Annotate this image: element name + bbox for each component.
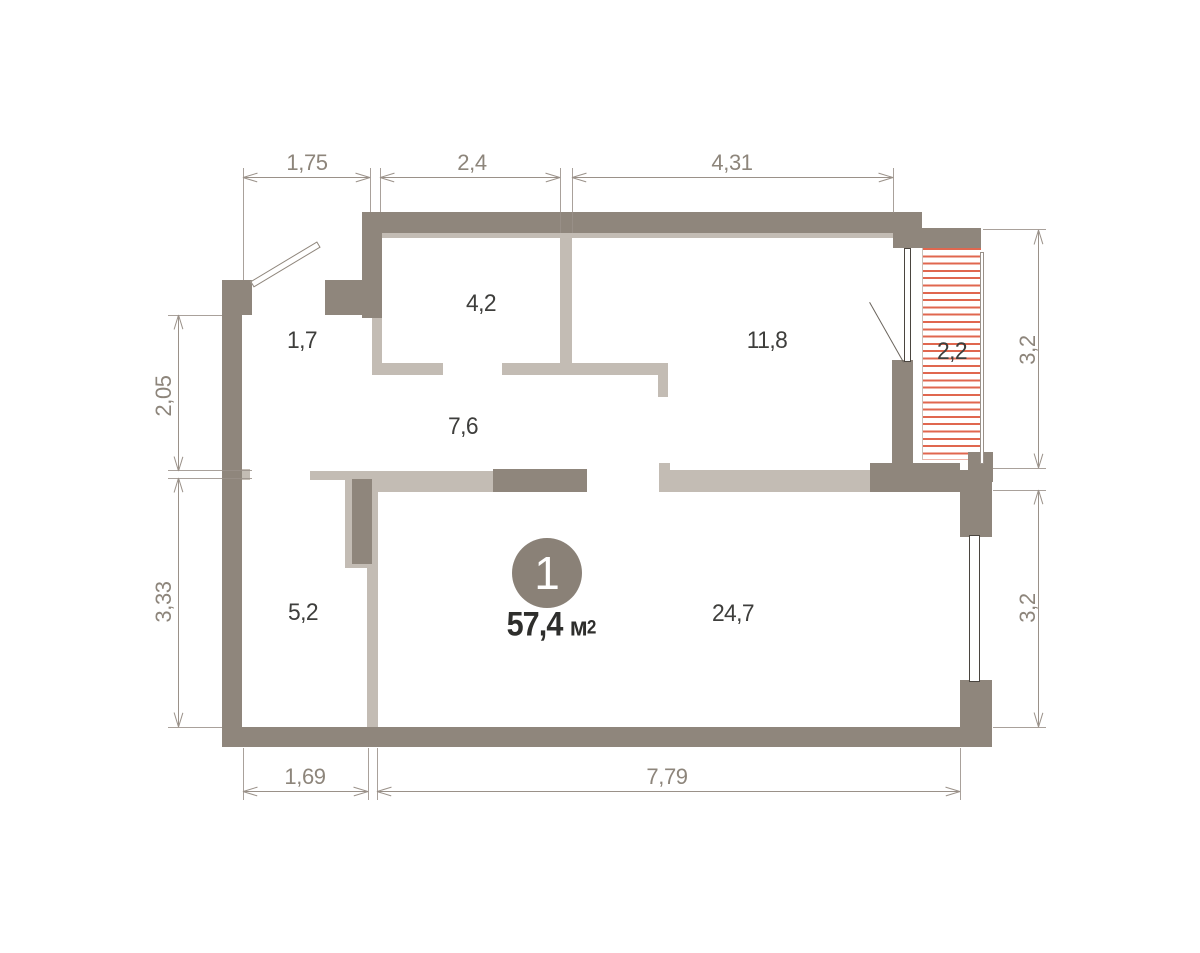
wall-bottom-exterior — [222, 727, 960, 747]
dimension-label-top-2: 2,4 — [457, 150, 486, 176]
dimension-extension-line — [370, 168, 371, 212]
living-room-window — [969, 535, 980, 682]
dimension-label-left-2: 3,33 — [151, 581, 177, 622]
wall-corridor-dark-segment — [493, 469, 587, 492]
dimension-extension-line — [368, 748, 369, 800]
wall-bedroom-bottom-dark — [870, 463, 960, 492]
wall-lining-top-left — [382, 233, 560, 238]
dimension-extension-line — [380, 168, 381, 212]
dimension-extension-line — [168, 727, 222, 728]
partition-corridor-left — [372, 363, 443, 375]
dimension-extension-line — [993, 468, 1046, 469]
partition-bathroom-top-thin — [310, 471, 345, 480]
total-area-value: 57,4 — [507, 606, 563, 645]
dimension-extension-line — [243, 748, 244, 800]
dimension-line — [243, 791, 368, 792]
unit-number: 1 — [534, 550, 560, 596]
partition-corridor-living-light — [378, 471, 493, 492]
dimension-label-bottom-1: 1,69 — [284, 764, 325, 790]
wall-entry-jamb-left — [222, 280, 252, 315]
wall-entry-vertical — [362, 212, 382, 318]
dimension-extension-line — [168, 478, 252, 479]
partition-bedroom-bottom-notch — [659, 463, 670, 470]
dimension-label-top-3: 4,31 — [711, 150, 752, 176]
dimension-line — [380, 177, 560, 178]
wall-left-exterior — [222, 315, 242, 747]
dimension-extension-line — [168, 470, 252, 471]
balcony-door-swing-line — [869, 302, 904, 363]
dimension-line — [377, 791, 960, 792]
dimension-line — [178, 478, 179, 727]
room-area-label: 11,8 — [747, 327, 787, 355]
room-area-label: 2,2 — [937, 338, 967, 366]
total-area-unit-sup: 2 — [587, 618, 596, 640]
dimension-extension-line — [993, 490, 1046, 491]
dimension-line — [572, 177, 893, 178]
wall-balcony-top — [922, 228, 981, 248]
dimension-extension-line — [960, 748, 961, 800]
room-area-label: 5,2 — [288, 599, 318, 627]
partition-bedroom-bottom-light — [659, 470, 870, 492]
dimension-label-left-1: 2,05 — [151, 375, 177, 416]
floor-plan: 1,75 2,4 4,31 1,69 7,79 2,05 3,33 3,2 3,… — [0, 0, 1200, 953]
dimension-label-right-1: 3,2 — [1015, 335, 1041, 364]
dimension-label-bottom-2: 7,79 — [646, 764, 687, 790]
wall-balcony-divider — [892, 360, 913, 470]
balcony-glazing — [980, 252, 984, 464]
dimension-extension-line — [893, 168, 894, 213]
entrance-door-leaf — [250, 241, 320, 287]
dimension-extension-line — [993, 727, 1046, 728]
dimension-extension-line — [560, 168, 561, 233]
room-area-label: 1,7 — [287, 327, 317, 355]
room-area-label: 7,6 — [448, 413, 478, 441]
dimension-extension-line — [377, 748, 378, 800]
dimension-extension-line — [983, 229, 1046, 230]
dimension-extension-line — [572, 168, 573, 233]
wall-lining-top-right — [572, 233, 893, 238]
balcony-door-frame — [904, 248, 911, 362]
wall-right-lower — [960, 680, 992, 747]
dimension-label-right-2: 3,2 — [1015, 593, 1041, 622]
partition-bathroom-living — [367, 568, 378, 727]
partition-corridor-right — [502, 363, 668, 375]
room-area-label: 24,7 — [712, 600, 754, 628]
wall-entry-stub — [325, 280, 362, 315]
partition-wardrobe-bedroom — [560, 233, 572, 363]
dimension-extension-line — [168, 315, 222, 316]
partition-bedroom-door-stub — [658, 363, 668, 397]
dimension-line — [178, 315, 179, 471]
wall-top-exterior — [362, 212, 922, 233]
room-area-label: 4,2 — [466, 290, 496, 318]
wall-balcony-top-block — [893, 233, 922, 248]
dimension-extension-line — [243, 168, 244, 280]
total-area-label: 57,4 м 2 — [507, 606, 596, 645]
unit-number-badge: 1 — [512, 538, 582, 608]
dimension-line — [243, 177, 370, 178]
dimension-label-top-1: 1,75 — [286, 150, 327, 176]
shaft-inner — [352, 479, 372, 564]
wall-right-upper — [960, 470, 992, 537]
total-area-unit: м — [570, 612, 587, 643]
